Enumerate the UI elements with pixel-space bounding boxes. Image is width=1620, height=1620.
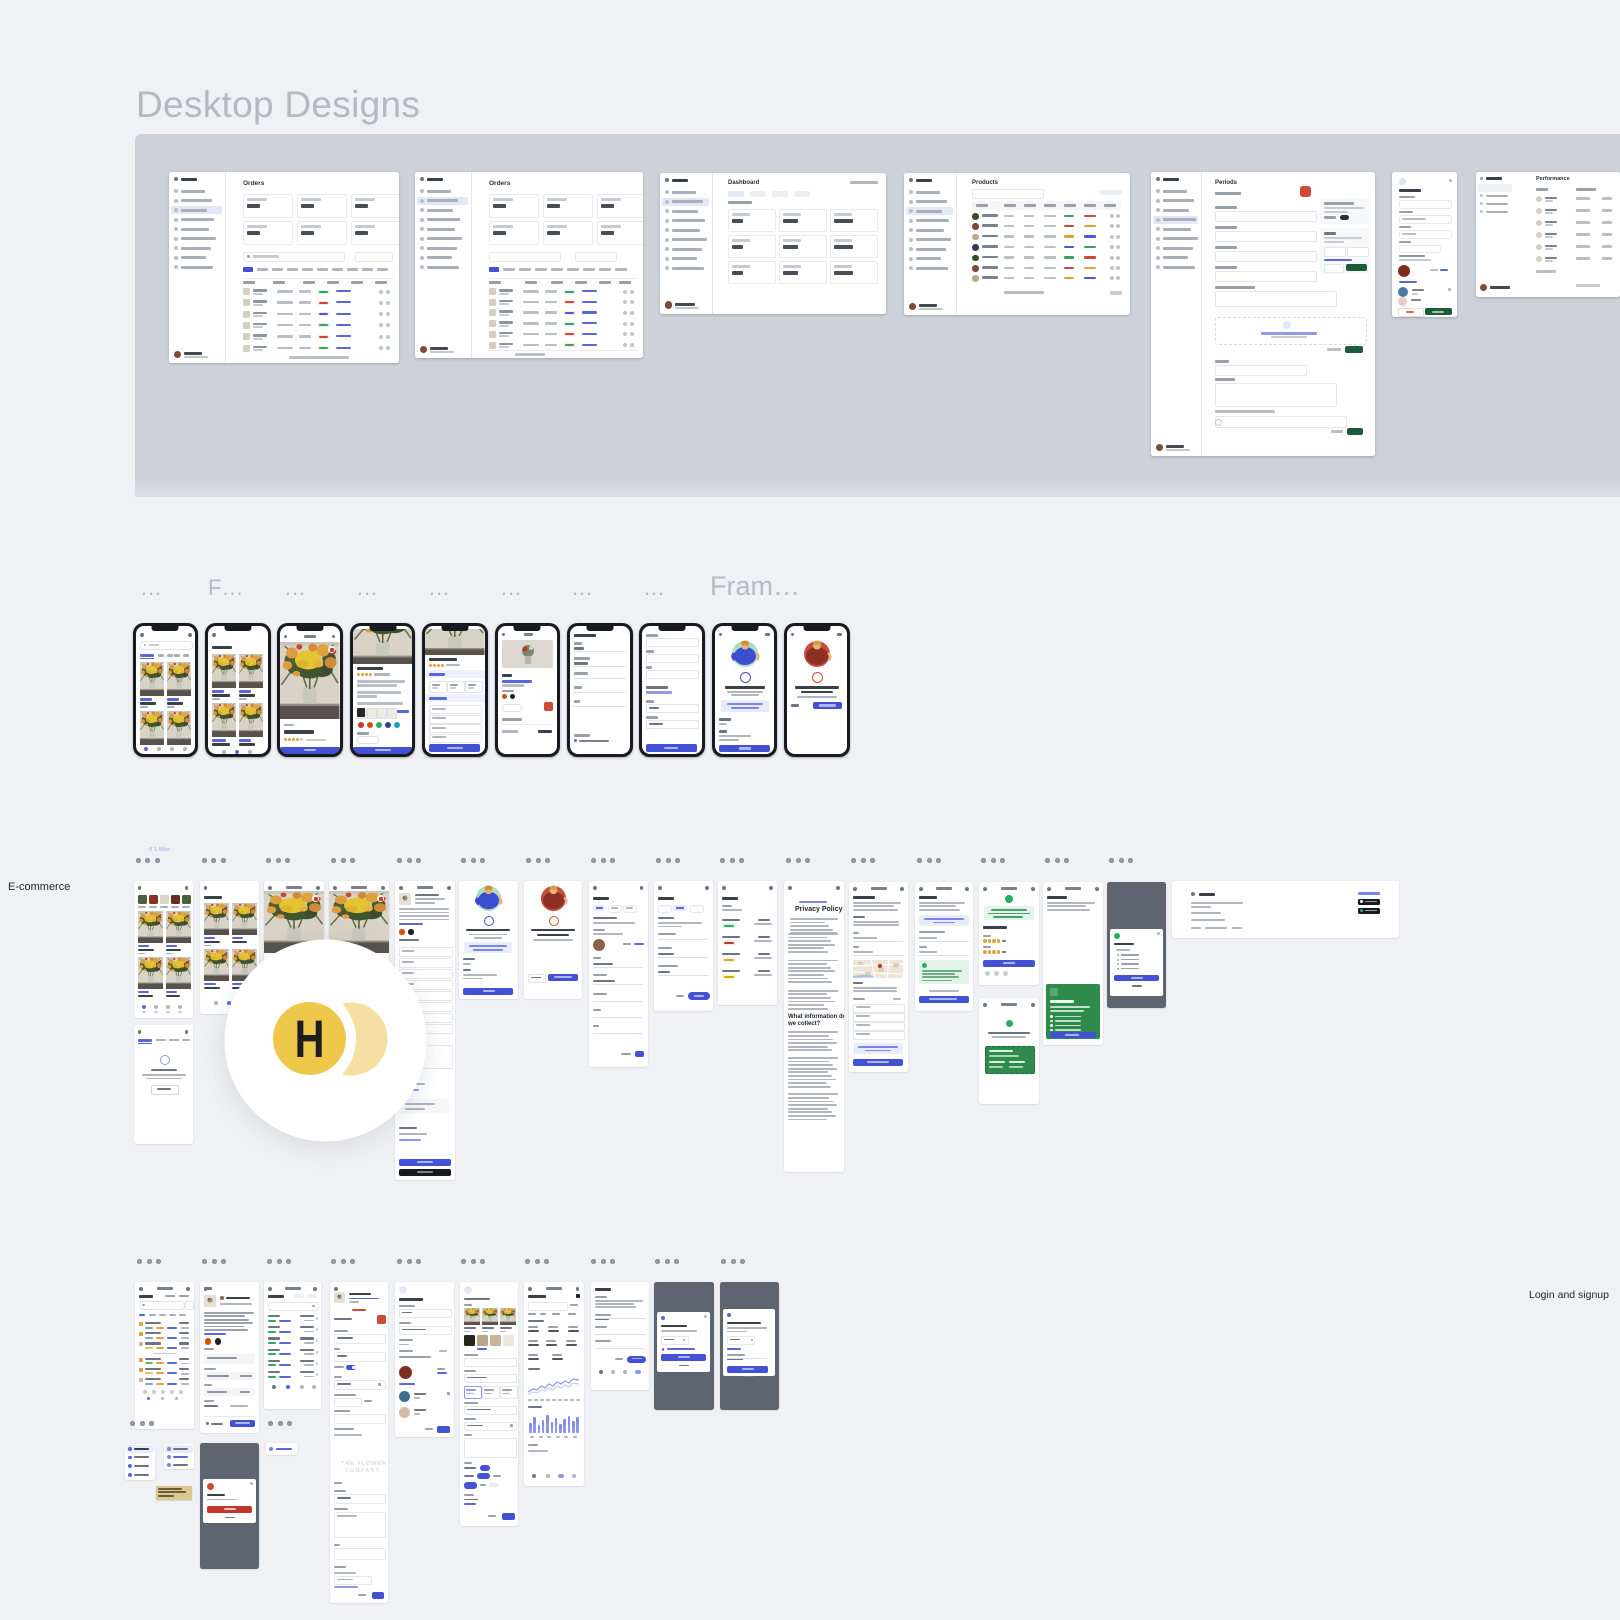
svg-text:H: H [295, 1010, 325, 1069]
